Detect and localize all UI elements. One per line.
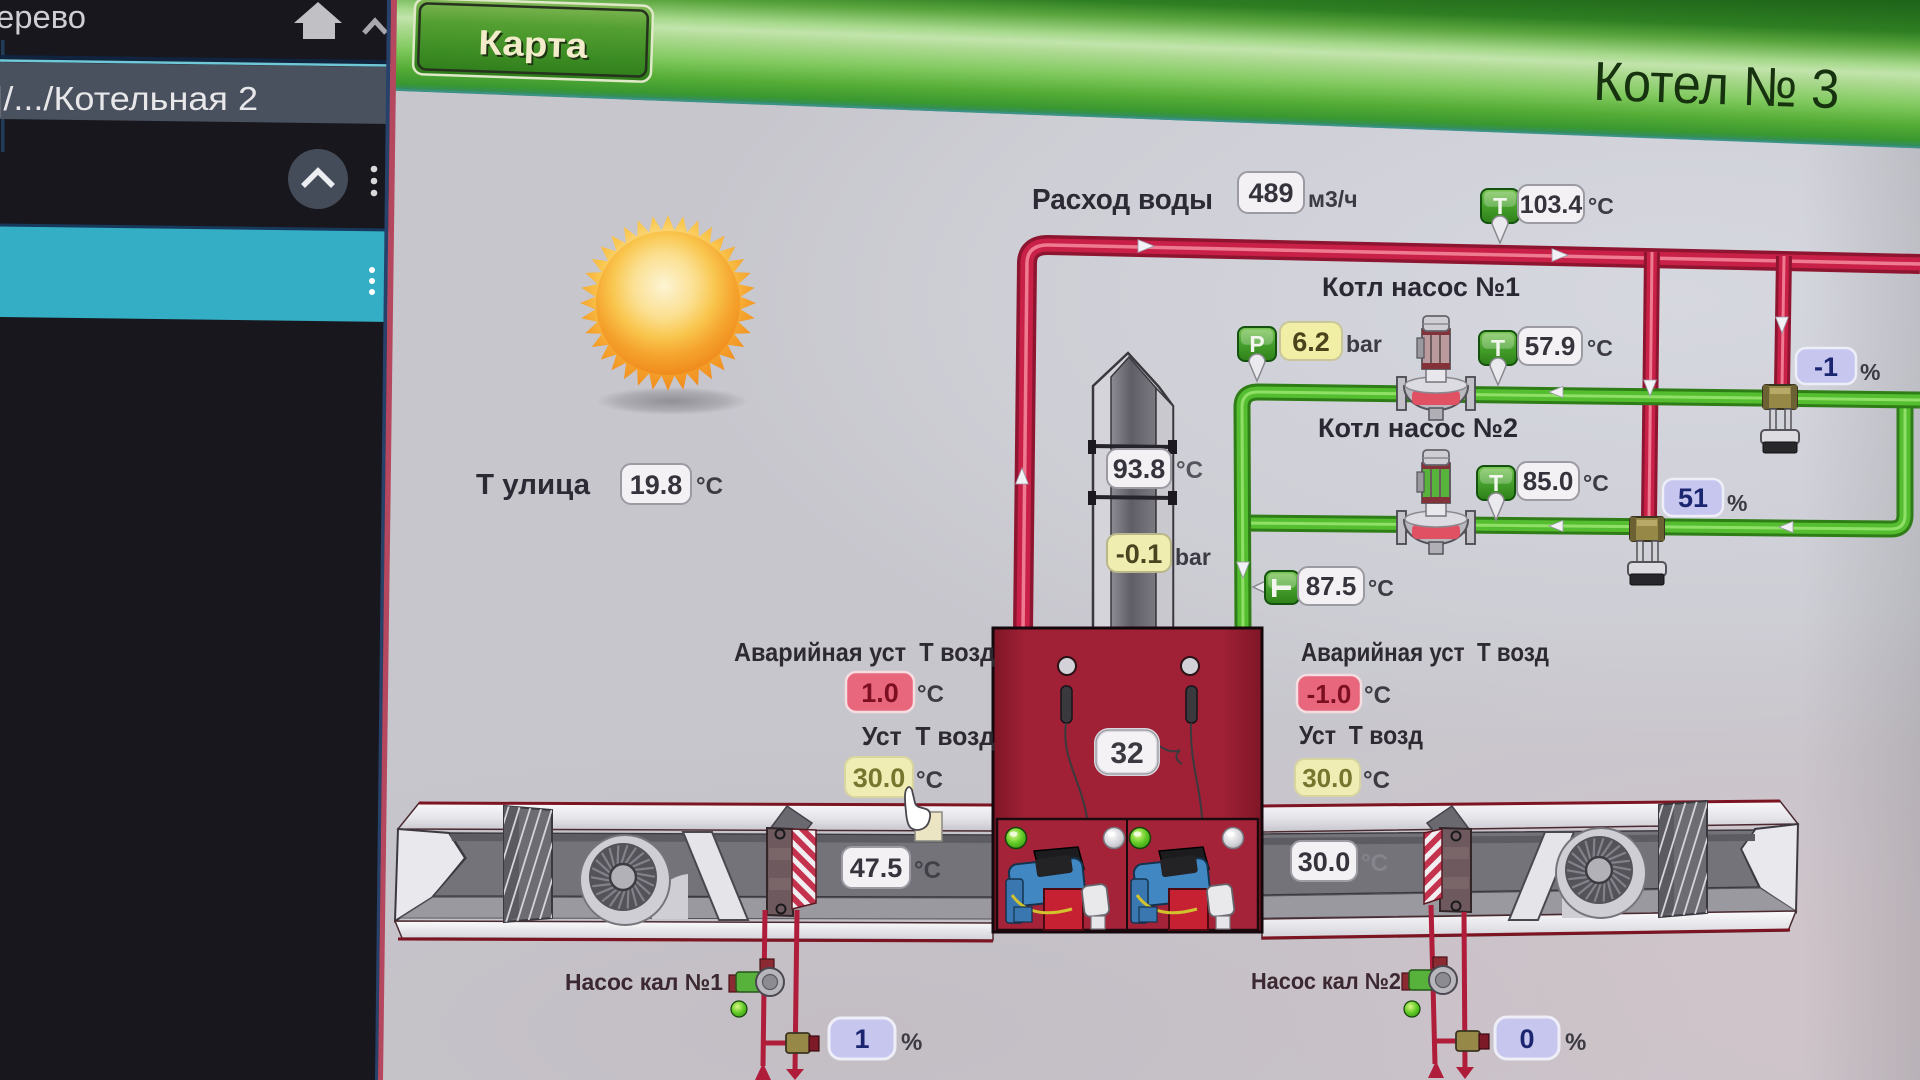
svg-text:Расход воды: Расход воды: [1032, 184, 1213, 216]
svg-text:%: %: [1860, 359, 1880, 385]
svg-text:0: 0: [1519, 1024, 1534, 1054]
svg-text:30.0: 30.0: [1298, 847, 1351, 877]
svg-text:°С: °С: [917, 681, 944, 708]
svg-text:|/.../Котельная 2: |/.../Котельная 2: [0, 80, 258, 117]
svg-text:Котл насос №2: Котл насос №2: [1318, 413, 1518, 443]
svg-text:-0.1: -0.1: [1116, 539, 1163, 569]
svg-text:32: 32: [1110, 737, 1143, 770]
svg-text:bar: bar: [1346, 331, 1382, 357]
svg-text:1: 1: [854, 1024, 869, 1054]
svg-text:°С: °С: [1583, 470, 1609, 496]
svg-text:51: 51: [1678, 483, 1708, 513]
svg-text:Аварийная уст Т возд: Аварийная уст Т возд: [1301, 637, 1549, 667]
svg-text:Котел № 3: Котел № 3: [1593, 50, 1841, 121]
svg-text:%: %: [901, 1029, 922, 1056]
svg-text:Т: Т: [1491, 335, 1505, 361]
svg-text:93.8: 93.8: [1113, 454, 1166, 484]
svg-text:Р: Р: [1249, 331, 1264, 357]
svg-text:1.0: 1.0: [861, 678, 899, 708]
svg-text:85.0: 85.0: [1523, 466, 1574, 496]
svg-text:м3/ч: м3/ч: [1308, 186, 1358, 212]
svg-text:19.8: 19.8: [630, 470, 683, 500]
svg-text:°С: °С: [1176, 457, 1203, 484]
svg-text:30.0: 30.0: [1302, 763, 1353, 793]
svg-text:489: 489: [1248, 178, 1293, 208]
svg-text:Насос кал №1: Насос кал №1: [565, 969, 723, 995]
svg-text:°С: °С: [1587, 335, 1613, 361]
svg-text:°С: °С: [1363, 767, 1390, 794]
svg-text:Карта: Карта: [478, 23, 589, 66]
svg-text:-1.0: -1.0: [1307, 679, 1352, 709]
svg-text:%: %: [1565, 1029, 1586, 1056]
svg-text:Котл насос №1: Котл насос №1: [1322, 272, 1520, 302]
svg-text:bar: bar: [1175, 544, 1211, 570]
svg-text:87.5: 87.5: [1306, 571, 1357, 601]
svg-text:°С: °С: [696, 473, 723, 500]
svg-text:-1: -1: [1814, 352, 1838, 382]
svg-text:°С: °С: [1361, 850, 1388, 877]
svg-text:57.9: 57.9: [1525, 331, 1576, 361]
svg-text:Уст Т возд: Уст Т возд: [1299, 720, 1423, 750]
svg-text:°С: °С: [1368, 575, 1394, 601]
svg-text:47.5: 47.5: [850, 853, 903, 883]
svg-text:ерево: ерево: [0, 0, 86, 35]
svg-text:°С: °С: [1588, 193, 1614, 219]
svg-text:103.4: 103.4: [1520, 191, 1583, 219]
svg-text:°С: °С: [914, 857, 941, 884]
svg-text:Т: Т: [1489, 470, 1503, 496]
svg-text:30.0: 30.0: [853, 763, 906, 793]
svg-text:Аварийная уст Т возд: Аварийная уст Т возд: [734, 637, 995, 667]
svg-text:6.2: 6.2: [1292, 327, 1330, 357]
svg-text:°С: °С: [1364, 682, 1391, 709]
svg-text:°С: °С: [916, 767, 943, 794]
svg-text:Т улица: Т улица: [476, 469, 591, 501]
svg-text:Уст Т возд: Уст Т возд: [862, 721, 995, 751]
svg-text:%: %: [1727, 490, 1747, 516]
svg-text:Насос кал №2: Насос кал №2: [1251, 968, 1401, 994]
svg-text:Т: Т: [1493, 193, 1507, 219]
